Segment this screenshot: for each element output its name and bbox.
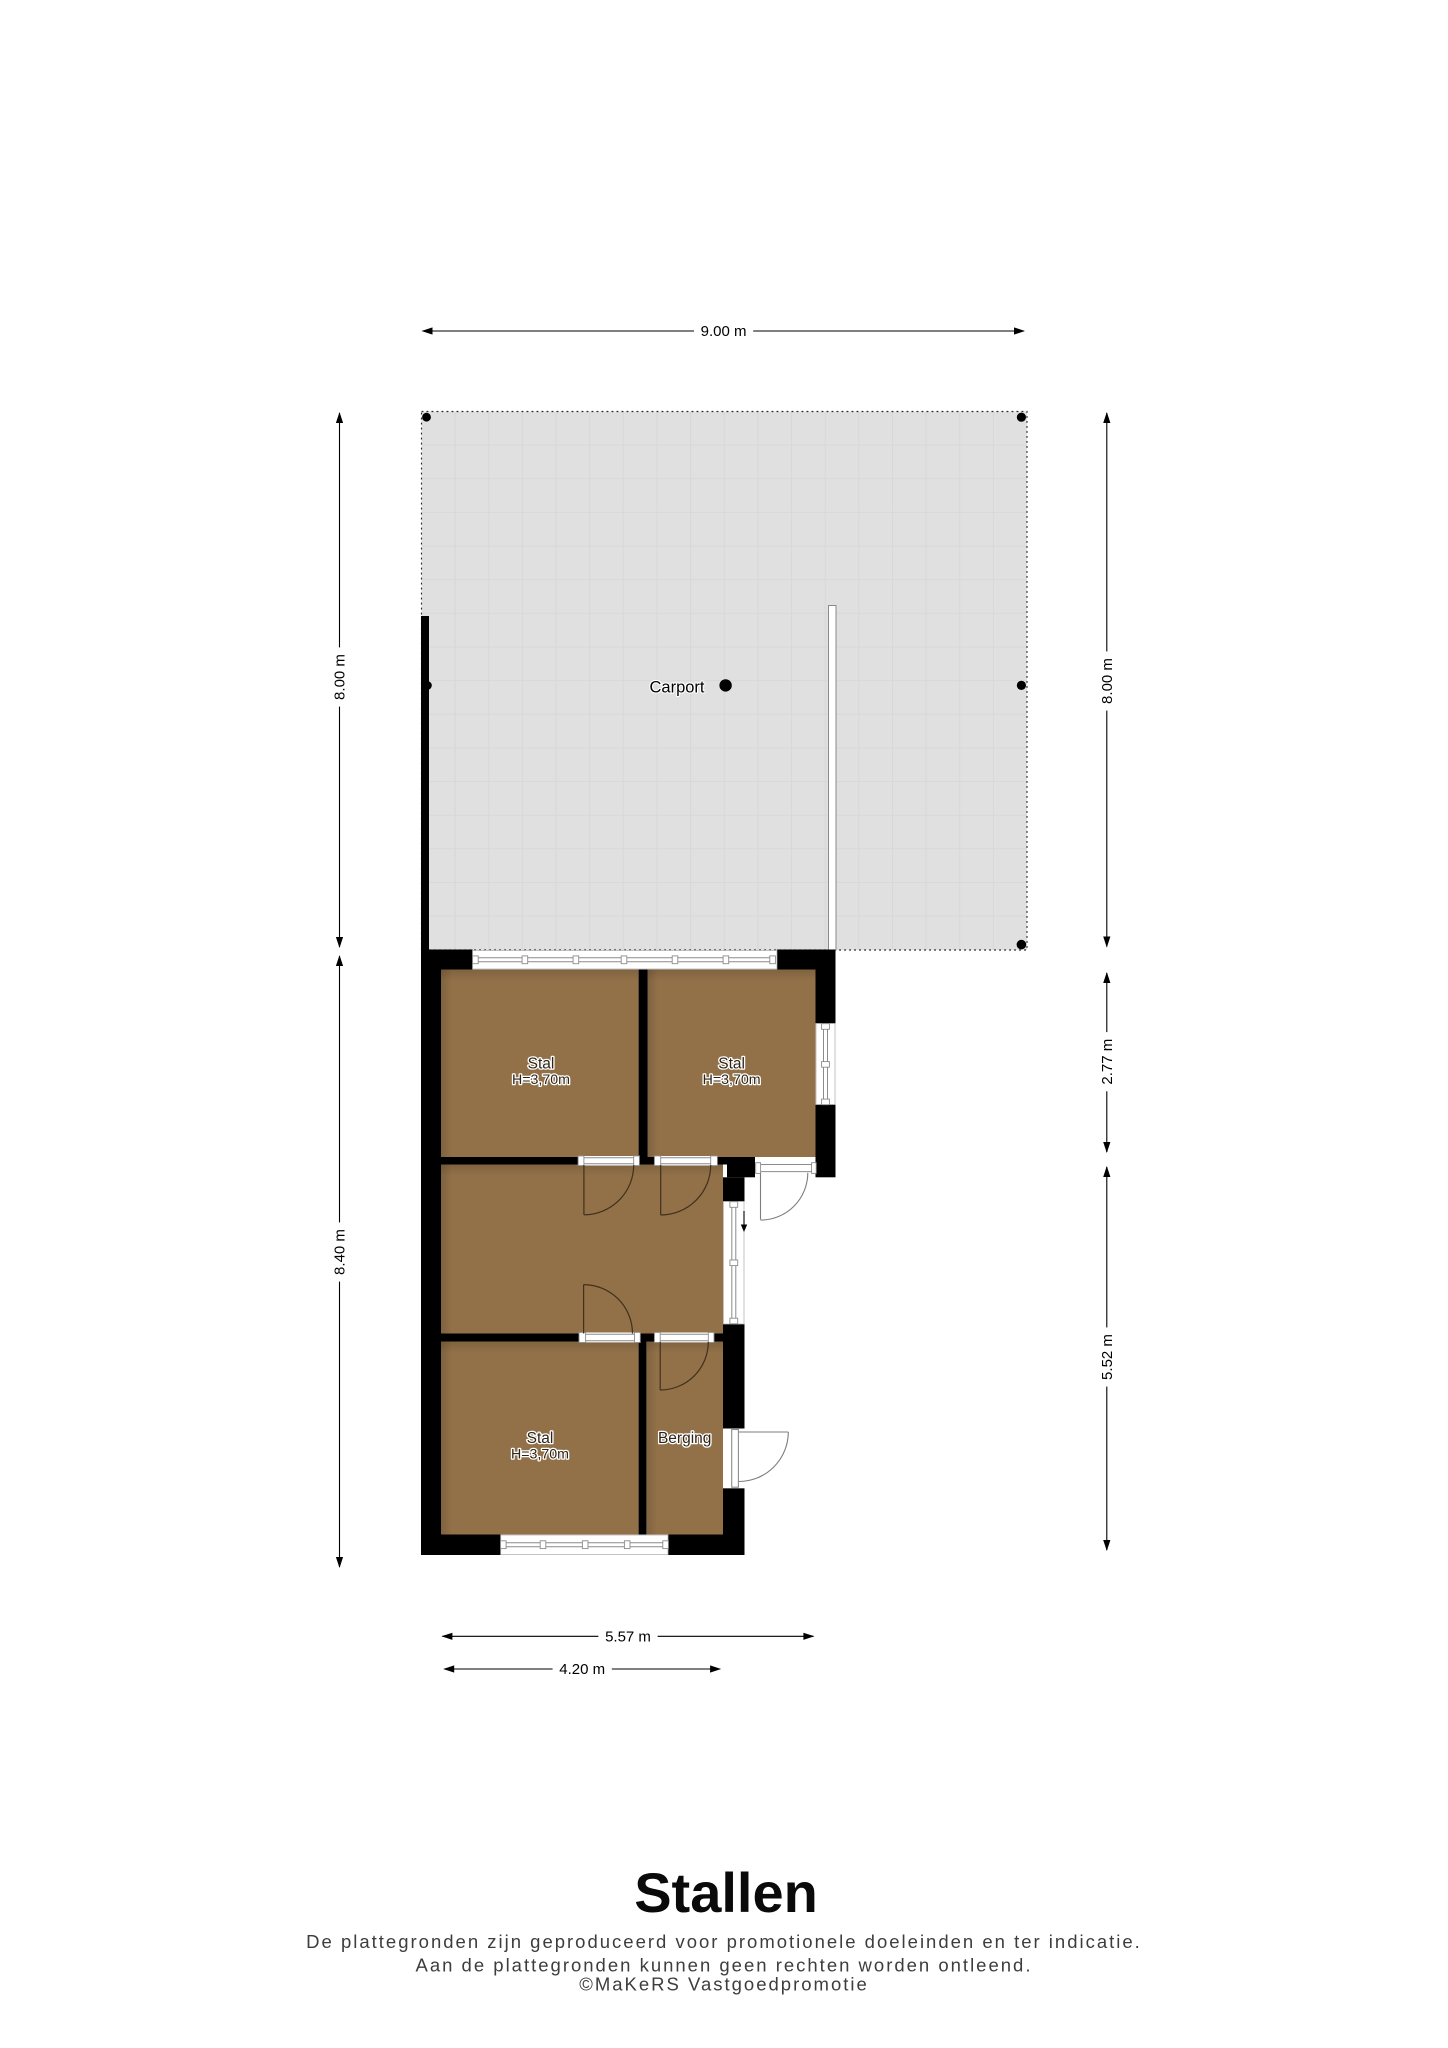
svg-text:Stal: Stal: [528, 1056, 555, 1073]
svg-text:5.57 m: 5.57 m: [605, 1629, 651, 1646]
svg-text:2.77 m: 2.77 m: [1099, 1039, 1116, 1085]
svg-text:8.00 m: 8.00 m: [1099, 658, 1116, 704]
svg-text:Stal: Stal: [718, 1056, 745, 1073]
svg-text:8.40 m: 8.40 m: [332, 1229, 349, 1275]
svg-text:Stallen: Stallen: [634, 1861, 818, 1924]
svg-text:Stal: Stal: [527, 1430, 554, 1447]
svg-text:H=3,70m: H=3,70m: [512, 1072, 570, 1088]
svg-text:De plattegronden zijn geproduc: De plattegronden zijn geproduceerd voor …: [306, 1931, 1142, 1952]
svg-text:H=3,70m: H=3,70m: [703, 1072, 761, 1088]
svg-text:©MaKeRS Vastgoedpromotie: ©MaKeRS Vastgoedpromotie: [579, 1974, 869, 1995]
svg-text:5.52 m: 5.52 m: [1099, 1334, 1116, 1380]
svg-text:Carport: Carport: [649, 678, 704, 696]
svg-text:9.00 m: 9.00 m: [701, 323, 747, 340]
svg-text:Berging: Berging: [658, 1430, 711, 1447]
svg-text:8.00 m: 8.00 m: [332, 654, 349, 700]
svg-text:Aan de plattegronden kunnen ge: Aan de plattegronden kunnen geen rechten…: [416, 1955, 1033, 1976]
svg-text:H=3,70m: H=3,70m: [511, 1447, 569, 1463]
svg-text:4.20 m: 4.20 m: [559, 1661, 605, 1678]
